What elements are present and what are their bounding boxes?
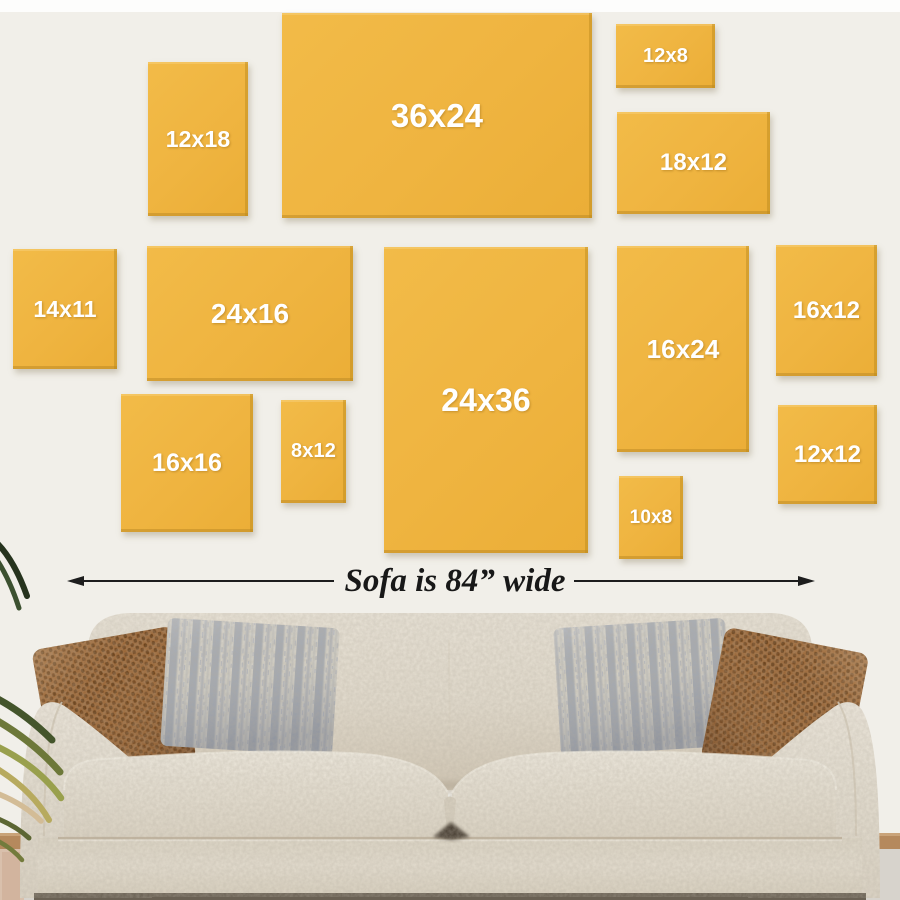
svg-text:Sofa is 84” wide: Sofa is 84” wide [345,563,566,599]
